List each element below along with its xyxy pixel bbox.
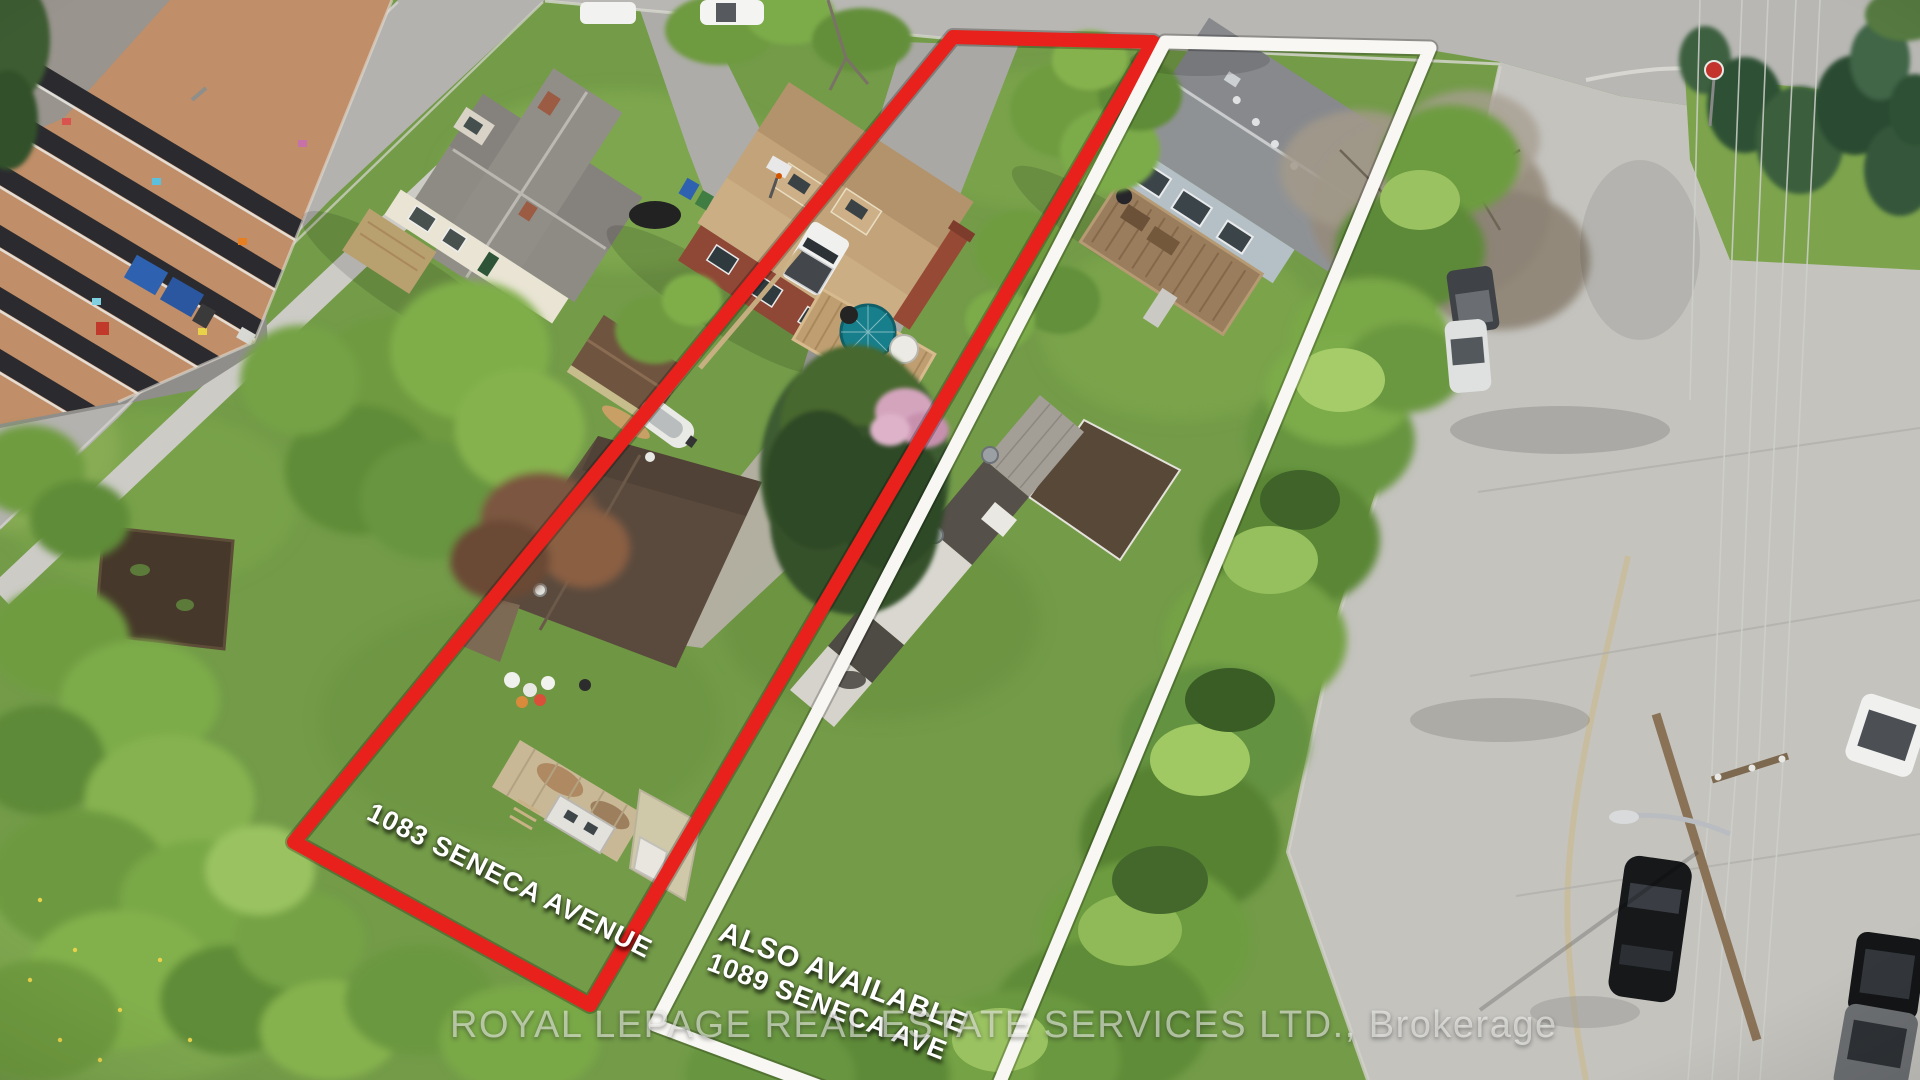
aerial-photo: 1083 SENECA AVENUE ALSO AVAILABLE 1089 S… (0, 0, 1920, 1080)
scene-canvas (0, 0, 1920, 1080)
brokerage-watermark: ROYAL LEPAGE REAL ESTATE SERVICES LTD., … (450, 1004, 1530, 1047)
vignette (0, 0, 1920, 1080)
